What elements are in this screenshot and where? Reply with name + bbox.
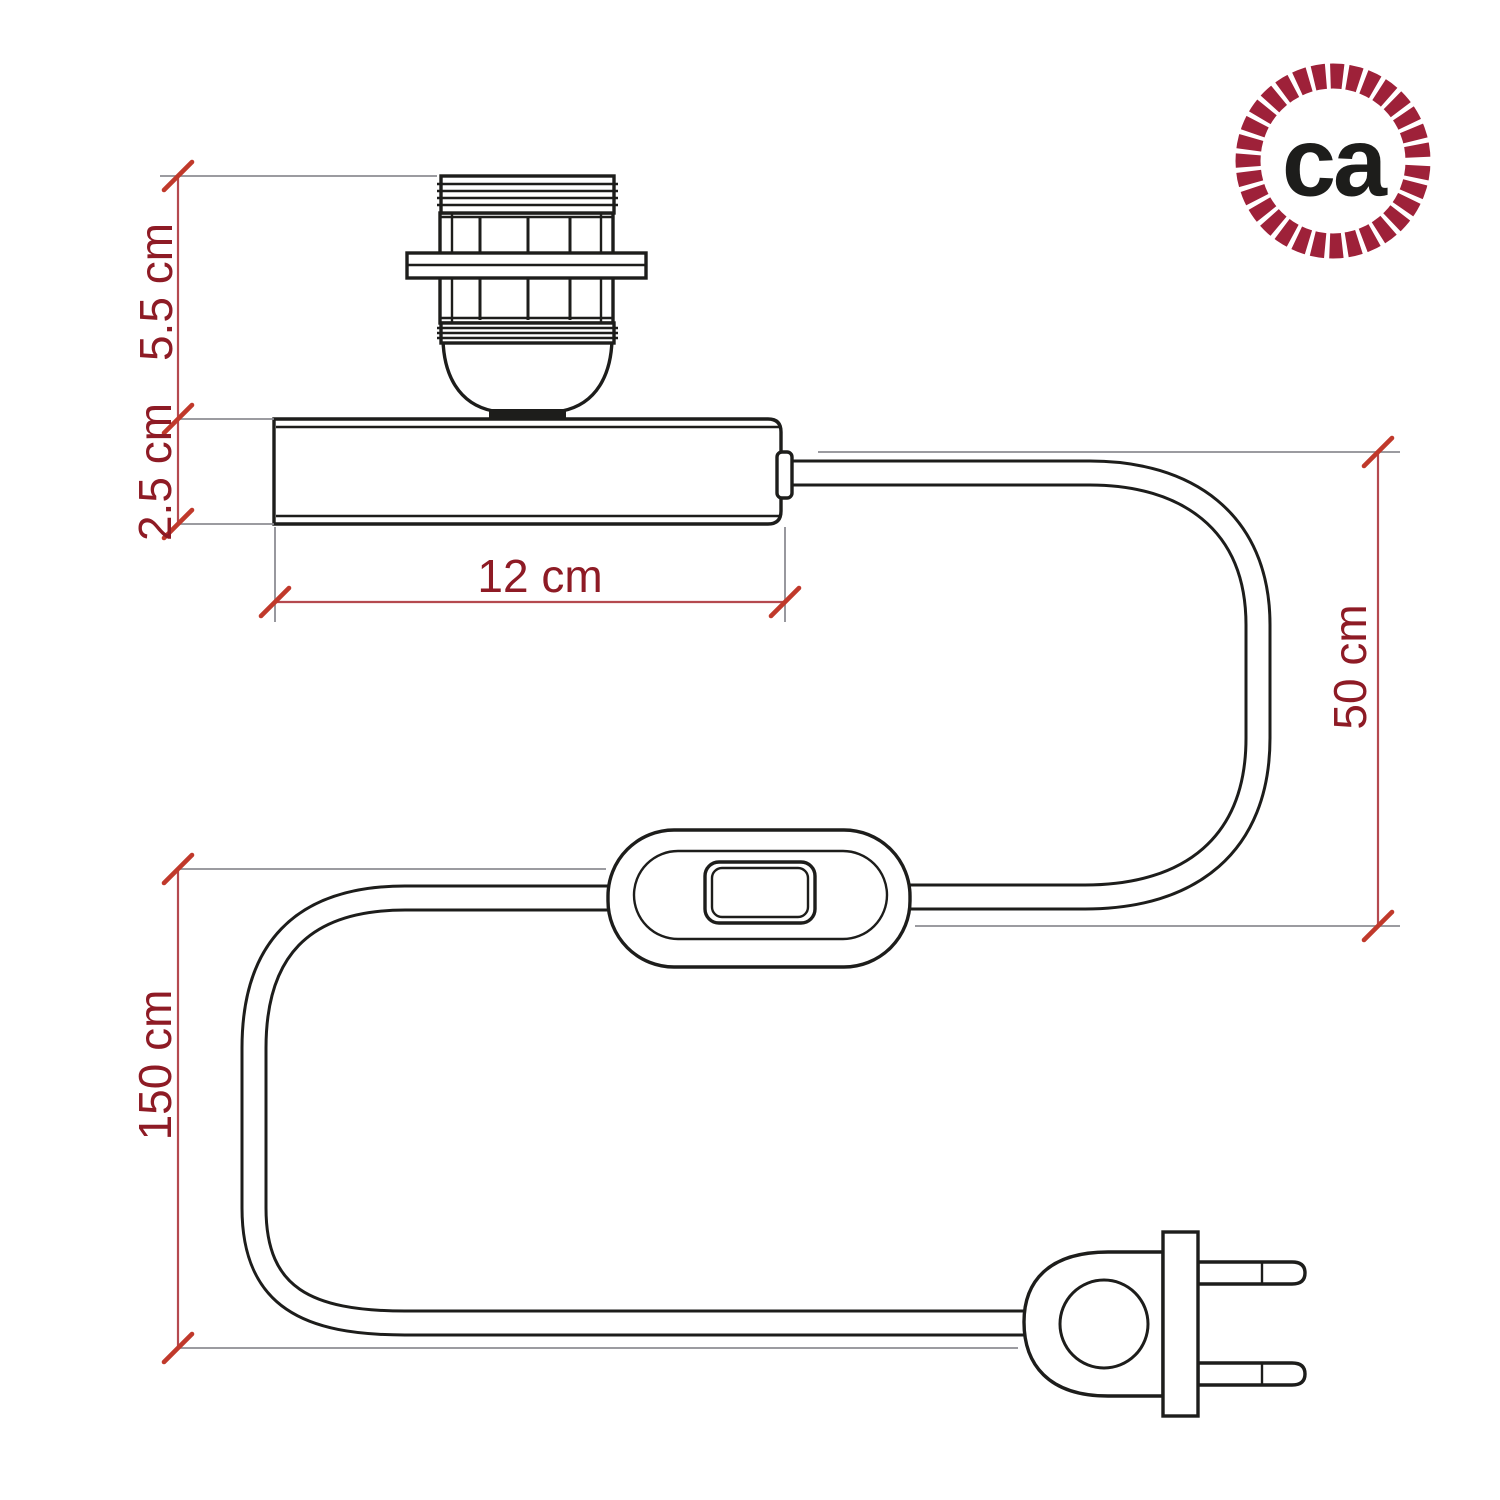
plug-prongs: [1198, 1262, 1305, 1385]
diagram-linework: [0, 0, 1500, 1500]
power-plug: [1024, 1232, 1305, 1416]
socket-lower-threads: [437, 323, 618, 343]
dimension-label-base-height: 2.5 cm: [132, 403, 178, 541]
lamp-base: [274, 419, 792, 524]
lamp-holder: [407, 176, 646, 419]
socket-top-threads: [437, 176, 618, 213]
plug-faceplate: [1163, 1232, 1198, 1416]
dimension-cable-to-switch: [818, 438, 1400, 940]
shade-ring: [407, 253, 646, 278]
socket-neck: [489, 409, 566, 419]
plug-body: [1024, 1252, 1163, 1396]
switch-rocker: [705, 862, 815, 923]
brand-logo-text: ca: [1282, 107, 1384, 219]
inline-switch: [608, 830, 910, 967]
socket-cup: [443, 340, 612, 411]
dimension-label-cable-total: 150 cm: [132, 990, 178, 1141]
dimension-label-cable-to-switch: 50 cm: [1327, 604, 1373, 729]
dimension-socket-height: [160, 162, 437, 419]
dimension-label-base-width: 12 cm: [477, 553, 602, 599]
product-dimension-diagram: 5.5 cm 2.5 cm 12 cm 50 cm 150 cm ca: [0, 0, 1500, 1500]
cable-strain-relief: [777, 452, 792, 498]
dimension-label-socket-height: 5.5 cm: [133, 223, 179, 361]
